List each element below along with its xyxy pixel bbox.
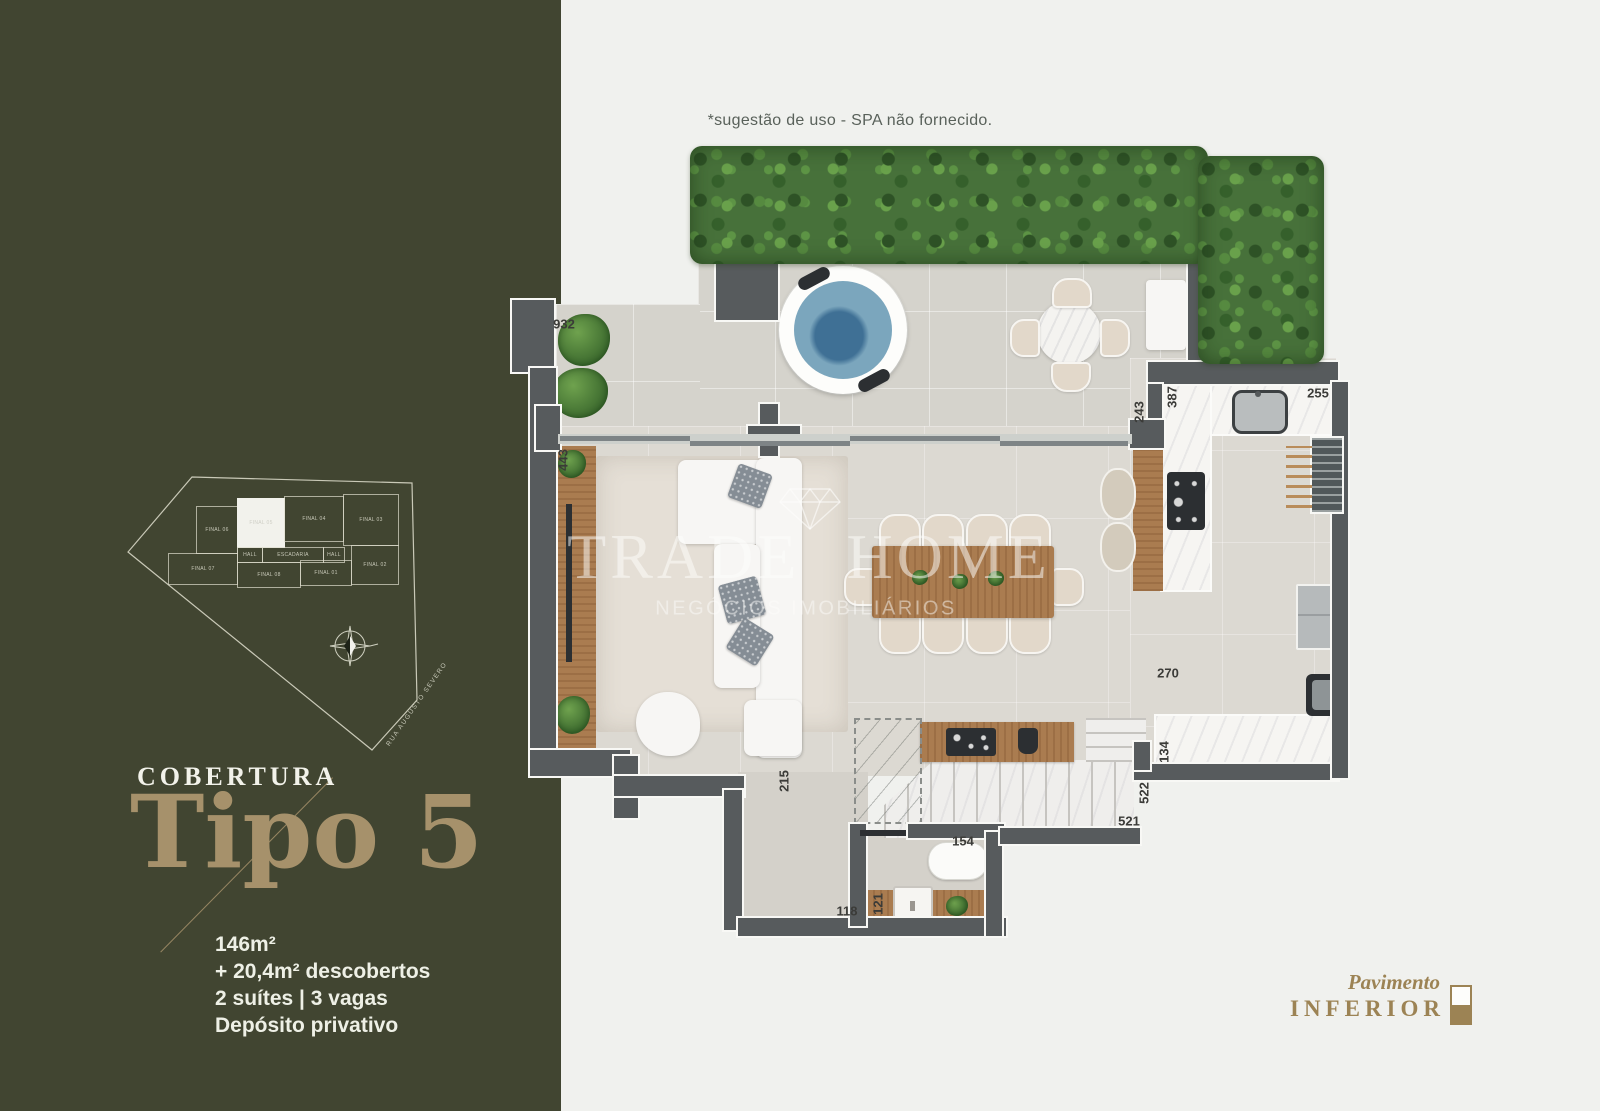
dimension-label: 522 (1137, 782, 1152, 804)
glass-panel (560, 436, 690, 441)
coffee-machine (1018, 728, 1038, 754)
terrace-chair (1100, 319, 1130, 357)
floor-indicator: Pavimento INFERIOR (1290, 970, 1440, 1022)
sofa-armrest (744, 700, 802, 756)
bar-cooktop (946, 728, 996, 756)
dining-chair (879, 614, 921, 654)
dimension-label: 521 (1118, 814, 1140, 829)
hedge-right (1198, 156, 1324, 364)
bathroom-door-leaf (860, 830, 906, 836)
dining-chair (1052, 568, 1084, 606)
terrace-round-table (1037, 301, 1101, 364)
wall-segment (724, 790, 742, 930)
grill-cabinet (1312, 438, 1342, 512)
terrace-bench (1146, 280, 1186, 350)
wall-segment (512, 300, 554, 372)
kitchen-sink (1232, 390, 1288, 434)
floor-plan: 932 443 243 387 255 270 134 522 521 154 … (0, 0, 1600, 1111)
bar-stool (1100, 522, 1136, 572)
hedge-top (690, 146, 1208, 264)
floor-indicator-line1: Pavimento (1290, 970, 1440, 995)
laundry-counter (1156, 716, 1334, 768)
entry-corridor-floor (738, 772, 868, 922)
stair-void (854, 718, 922, 824)
dimension-label: 134 (1157, 741, 1172, 763)
wall-segment (1000, 828, 1140, 844)
stair-bar-counter (920, 722, 1074, 762)
wall-segment (536, 406, 560, 450)
tv (566, 504, 572, 662)
kitchen-wall-top (1148, 362, 1338, 384)
glass-panel (850, 436, 1000, 441)
dimension-label: 243 (1132, 401, 1147, 423)
terrace-chair (1052, 278, 1092, 308)
cooktop (1167, 472, 1205, 530)
dimension-label: 121 (871, 893, 886, 915)
wall-segment (1134, 742, 1150, 770)
dimension-label: 255 (1307, 386, 1329, 401)
dimension-label: 270 (1157, 666, 1179, 681)
armchair (636, 692, 700, 756)
glass-panel (690, 441, 850, 446)
glass-panel (1000, 441, 1128, 446)
dining-chair (1009, 614, 1051, 654)
barbecue-skewers (1286, 446, 1312, 508)
wall-segment (1134, 764, 1338, 780)
terrace-chair (1051, 362, 1091, 392)
dining-chair (966, 614, 1008, 654)
sink-drain (910, 901, 915, 911)
spa-hot-tub (779, 266, 907, 394)
bar-stool (1100, 468, 1136, 520)
floor-indicator-line2: INFERIOR (1290, 996, 1440, 1022)
dimension-label: 118 (837, 904, 858, 919)
dining-chair (922, 614, 964, 654)
bathroom-wall-right (986, 832, 1002, 936)
lower-floor-icon (1450, 985, 1472, 1025)
dimension-label: 443 (556, 449, 571, 471)
terrace-chair (1010, 319, 1040, 357)
dimension-label: 932 (553, 317, 575, 332)
dimension-label: 215 (777, 770, 792, 792)
wall-segment (1130, 420, 1164, 448)
spa-water (794, 281, 892, 379)
island-wood-bar (1133, 445, 1163, 591)
dimension-label: 387 (1165, 386, 1180, 408)
faucet (1255, 391, 1261, 397)
wall-segment (738, 918, 1006, 936)
dimension-label: 154 (952, 834, 974, 849)
usage-note: *sugestão de uso - SPA não fornecido. (620, 112, 1080, 130)
